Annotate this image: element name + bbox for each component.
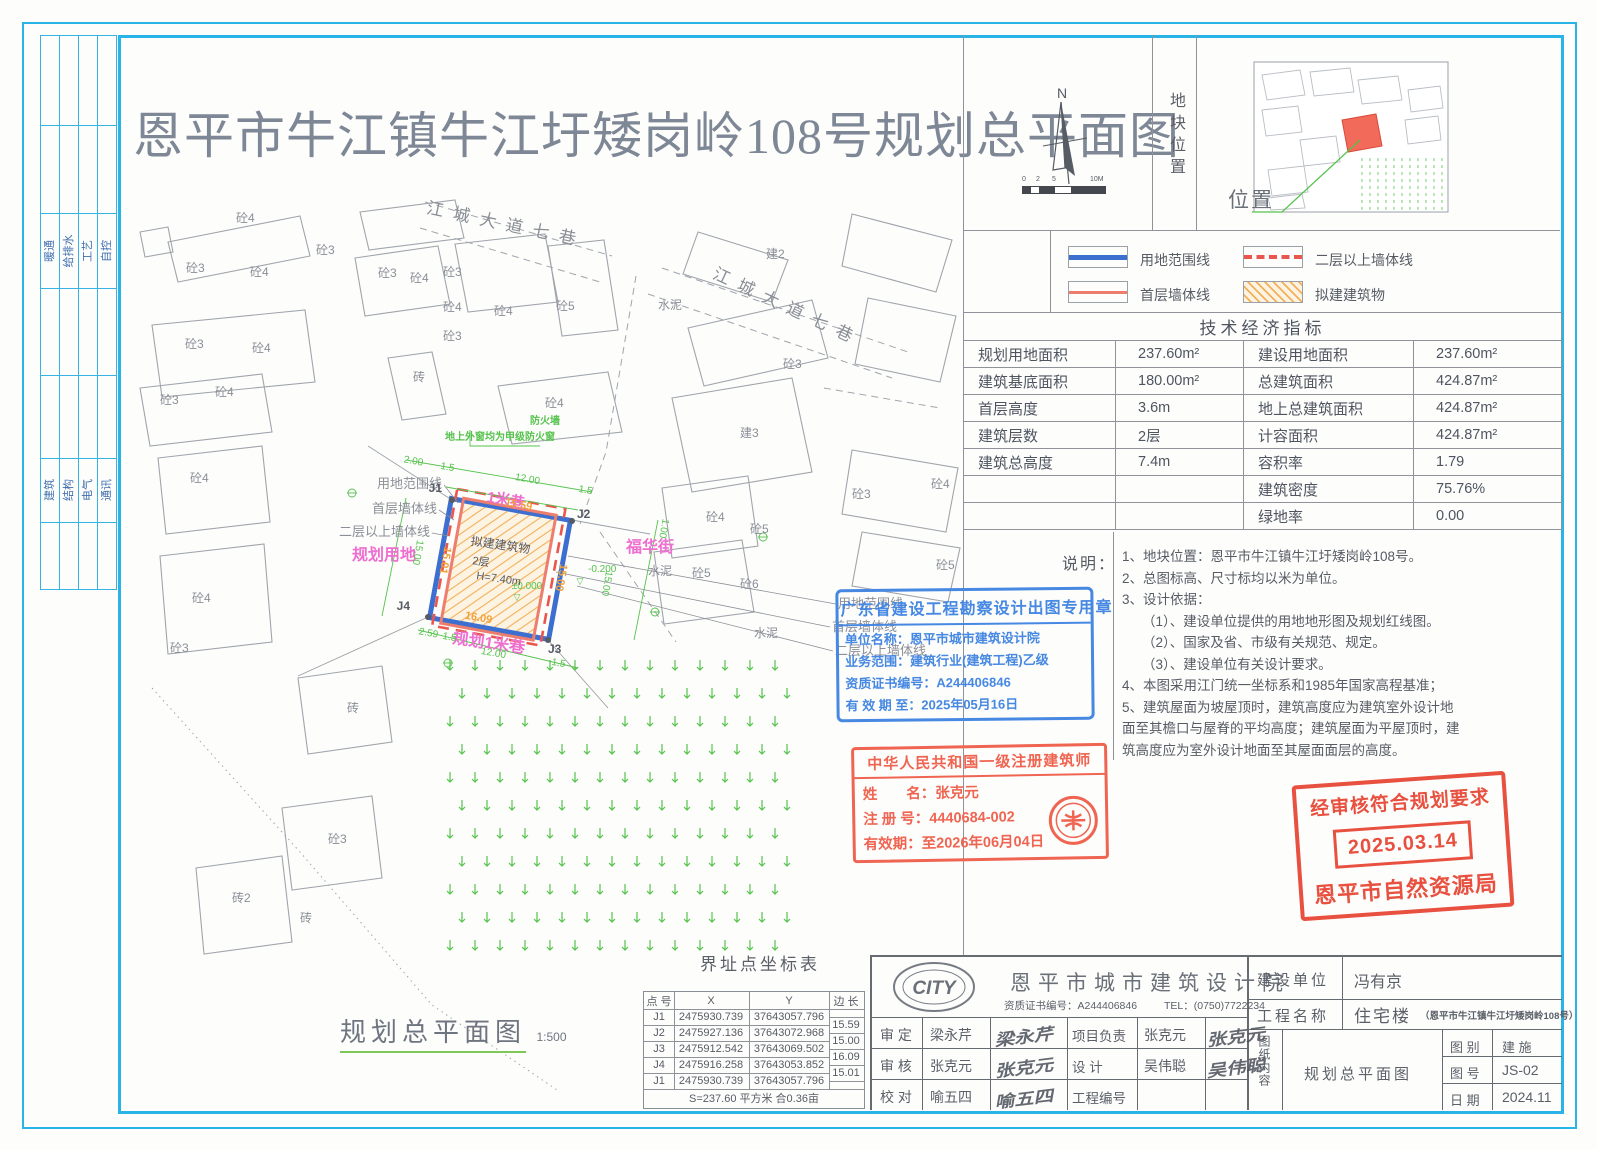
strip-label: 建筑 <box>40 455 60 525</box>
registered-architect-stamp: 中华人民共和国一级注册建筑师 姓 名：张克元 注 册 号：4440684-002… <box>851 743 1109 863</box>
map-label: 地上外窗均为甲级防火窗 <box>445 430 555 443</box>
map-label: 二层以上墙体线 <box>339 524 430 539</box>
map-label: 砼4 <box>931 477 950 491</box>
legend-swatch-proposed <box>1243 281 1303 303</box>
map-label: 砼3 <box>170 641 189 655</box>
map-label: 砼4 <box>545 396 564 410</box>
map-label: 砼5 <box>692 566 711 580</box>
note-line: 2、总图标高、尺寸标均以米为单位。 <box>1122 568 1558 590</box>
map-label: 江城大道七巷 <box>710 264 865 350</box>
map-label: J2 <box>577 507 591 521</box>
svg-text:CITY: CITY <box>912 978 958 999</box>
legend-swatch-first-wall <box>1068 281 1128 303</box>
plan-scale: 1:500 <box>536 1030 566 1044</box>
map-label: 1.00 <box>656 518 670 540</box>
note-line: （2）、国家及省、市级有关规范、规定。 <box>1122 632 1558 654</box>
map-label: 砼4 <box>494 304 513 318</box>
map-label: 砼3 <box>443 265 462 279</box>
project-subtitle: （恩平市牛江镇牛江圩矮岗岭108号） <box>1420 1008 1578 1022</box>
note-line: （3）、建设单位有关设计要求。 <box>1122 654 1558 676</box>
map-label: J1 <box>429 481 443 495</box>
map-label: 砼3 <box>160 393 179 407</box>
map-label: 1.5 <box>442 631 458 644</box>
map-label: -0.200 <box>588 564 617 575</box>
location-minimap <box>1252 60 1450 214</box>
project-name: 住宅楼 <box>1354 1002 1411 1027</box>
sheet-date: 2024.11 <box>1502 1089 1552 1105</box>
notes-block: 1、地块位置：恩平市牛江镇牛江圩矮岗岭108号。 2、总图标高、尺寸标均以米为单… <box>1122 546 1558 761</box>
map-label: 砼3 <box>186 261 205 275</box>
map-label: ▽ <box>577 576 584 586</box>
map-label: 砼3 <box>316 243 335 257</box>
map-label: 砼3 <box>783 357 802 371</box>
scale-bar: 0 2 5 10M <box>1022 176 1106 194</box>
map-label: 2.00 <box>403 454 425 468</box>
map-label: 2层 <box>472 554 491 569</box>
plan-title: 规划总平面图 1:500 <box>340 1012 567 1049</box>
legend-label: 首层墙体线 <box>1140 285 1210 305</box>
map-label: 砼4 <box>706 510 725 524</box>
drawing-sheet: 暖通 给排水 工艺 自控 建筑 结构 电气 通讯 恩平市牛江镇牛江圩矮岗岭108… <box>0 0 1597 1149</box>
company-tel: TEL：(0750)7722234 <box>1164 998 1265 1013</box>
map-label: 砼6 <box>740 577 759 591</box>
note-line: 4、本图采用江门统一坐标系和1985年国家高程基准； <box>1122 675 1558 697</box>
scale-tick: 2 <box>1036 176 1040 183</box>
map-label: 砼3 <box>378 266 397 280</box>
site-location-vertical-label: 地块位置 <box>1163 92 1187 212</box>
map-label: 砖 <box>300 910 312 925</box>
map-label: J3 <box>548 642 562 656</box>
coord-table: 点 号 X Y 边 长 J1 2475930.739 37643057.796 … <box>643 991 865 1109</box>
map-label: 江城大道七巷 <box>425 198 587 250</box>
map-label: 水泥 <box>648 564 672 578</box>
architect-seal-icon <box>1047 794 1100 847</box>
map-label: 首层墙体线 <box>372 501 437 516</box>
company-logo-icon: CITY <box>882 960 994 1014</box>
map-label: 砼3 <box>852 487 871 501</box>
scale-tick: 10M <box>1090 176 1104 183</box>
company-name: 恩平市城市建筑设计院 <box>1010 967 1290 997</box>
map-label: 1.5 <box>551 657 567 670</box>
map-label: 2.59 <box>418 626 440 640</box>
title-block: CITY 恩平市城市建筑设计院 资质证书编号：A244406846 TEL：(0… <box>870 955 1562 1110</box>
map-label: 建3 <box>740 426 759 440</box>
strip-label: 通讯 <box>97 455 117 525</box>
map-label: 砖 <box>347 700 359 715</box>
building-outlines <box>140 200 960 954</box>
minimap-site-marker <box>1342 114 1382 152</box>
note-line: 筑高度应为室外设计地面至其屋面面层的高度。 <box>1122 740 1558 762</box>
map-label: 砼4 <box>192 591 211 605</box>
position-label: 位置 <box>1228 184 1274 214</box>
map-label: 1.5 <box>440 461 456 474</box>
notes-label: 说明： <box>1062 550 1116 574</box>
legend-swatch-upper-wall <box>1243 246 1303 268</box>
map-label: 砼5 <box>750 522 769 536</box>
strip-label: 给排水 <box>59 216 79 286</box>
stamp-title: 中华人民共和国一级注册建筑师 <box>854 746 1104 779</box>
page-title: 恩平市牛江镇牛江圩矮岗岭108号规划总平面图 <box>133 96 968 168</box>
scale-tick: 0 <box>1022 176 1026 183</box>
signature: 张克元 <box>993 1051 1054 1082</box>
map-label: 水泥 <box>658 298 682 312</box>
legend-swatch-boundary <box>1068 246 1128 268</box>
tech-indicators-table: 技术经济指标 规划用地面积237.60m²建设用地面积237.60m² 建筑基底… <box>963 312 1562 530</box>
vegetation-field <box>447 660 790 950</box>
map-label: 砼4 <box>252 341 271 355</box>
map-label: 砼5 <box>936 558 955 572</box>
stamp-title: 广东省建设工程勘察设计出图专用章 <box>838 590 1090 627</box>
map-label: 砼4 <box>250 265 269 279</box>
sheet-number: JS-02 <box>1502 1062 1539 1078</box>
map-label: 建2 <box>766 247 785 261</box>
map-label: 砼4 <box>190 471 209 485</box>
strip-label: 电气 <box>78 455 98 525</box>
map-label: 砖2 <box>232 890 251 905</box>
map-label: 砼4 <box>236 211 255 225</box>
north-label: N <box>1057 85 1067 101</box>
map-label: 砼3 <box>185 337 204 351</box>
proposed-building-hatch <box>441 498 556 640</box>
company-cert: 资质证书编号：A244406846 <box>1004 998 1137 1013</box>
map-label: 砖 <box>413 369 425 384</box>
approval-date: 2025.03.14 <box>1333 820 1473 869</box>
sheet-content: 规划总平面图 <box>1304 1063 1412 1084</box>
legend-label: 拟建建筑物 <box>1315 285 1385 305</box>
map-label: 砼4 <box>410 271 429 285</box>
map-label: 砼3 <box>328 832 347 846</box>
note-line: 1、地块位置：恩平市牛江镇牛江圩矮岗岭108号。 <box>1122 546 1558 568</box>
map-label: 12.00 <box>514 472 541 487</box>
map-label: 福华街 <box>625 537 674 556</box>
signature: 梁永芹 <box>993 1020 1054 1051</box>
map-label: 规划用地 <box>352 545 416 564</box>
map-label: 1.5 <box>578 484 594 497</box>
map-label: 15.00 <box>410 539 425 566</box>
map-label: 防火墙 <box>530 414 560 427</box>
map-label: 砼4 <box>215 385 234 399</box>
strip-label: 结构 <box>59 455 79 525</box>
legend-label: 用地范围线 <box>1140 250 1210 270</box>
signature: 喻五四 <box>993 1082 1054 1113</box>
note-line: 5、建筑屋面为坡屋顶时，建筑高度应为建筑室外设计地 <box>1122 697 1558 719</box>
design-institute-stamp: 广东省建设工程勘察设计出图专用章 单位名称：恩平市城市建筑设计院 业务范围：建筑… <box>835 587 1094 723</box>
map-label: ▽ <box>514 592 521 602</box>
approval-org: 恩平市自然资源局 <box>1306 865 1506 911</box>
note-line: （1）、建设单位提供的用地地形图及规划红线图。 <box>1122 611 1558 633</box>
strip-label: 自控 <box>97 216 117 286</box>
coord-table-title: 界址点坐标表 <box>700 950 820 975</box>
strip-label: 暖通 <box>40 216 60 286</box>
note-line: 面至其檐口与屋脊的平均高度；建筑屋面为平屋顶时，建 <box>1122 718 1558 740</box>
legend-label: 二层以上墙体线 <box>1315 250 1413 270</box>
planning-approval-stamp: 经审核符合规划要求 2025.03.14 恩平市自然资源局 <box>1292 771 1515 922</box>
map-label: J4 <box>397 599 411 613</box>
map-label: 水泥 <box>754 626 778 640</box>
coord-table-footer: S=237.60 平方米 合0.36亩 <box>689 1090 819 1106</box>
tech-table-title: 技术经济指标 <box>964 313 1562 341</box>
client-name: 冯有京 <box>1354 968 1402 992</box>
note-line: 3、设计依据： <box>1122 589 1558 611</box>
map-label: 砼5 <box>556 299 575 313</box>
map-label: 砼4 <box>443 300 462 314</box>
strip-label: 工艺 <box>78 216 98 286</box>
sheet-category: 建 施 <box>1502 1037 1532 1056</box>
content-label: 图纸内容 <box>1256 1035 1273 1107</box>
scale-tick: 5 <box>1052 176 1056 183</box>
map-label: 砼3 <box>443 329 462 343</box>
